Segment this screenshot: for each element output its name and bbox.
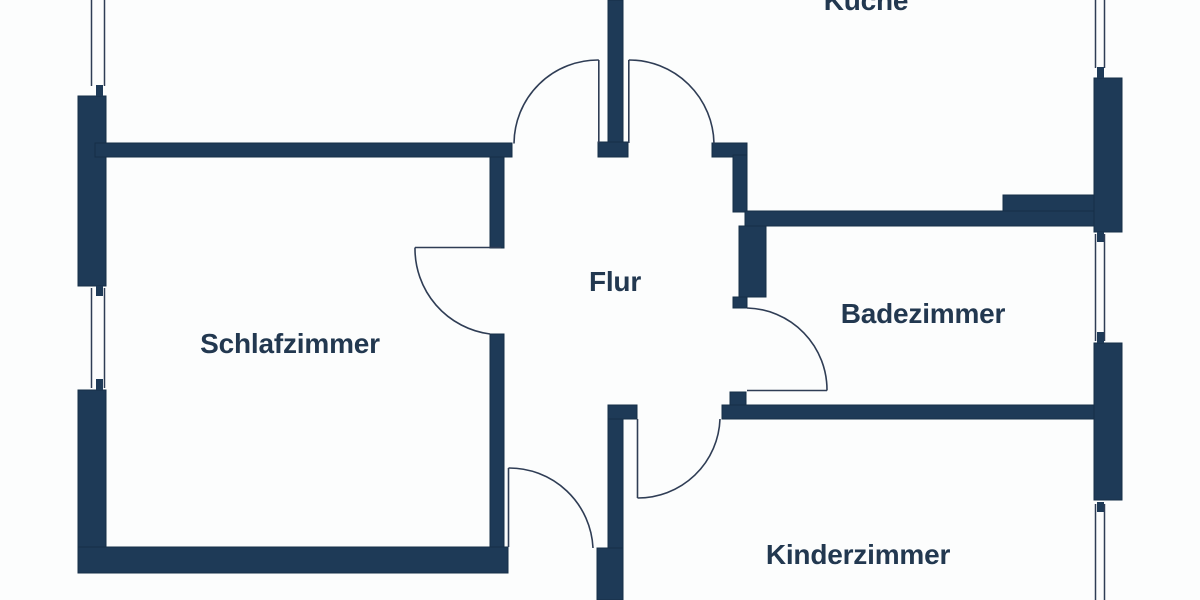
window-tick xyxy=(96,379,103,390)
room-label-kinderzimmer: Kinderzimmer xyxy=(766,541,950,569)
door-arc-icon xyxy=(629,60,714,144)
door-flur-bottom xyxy=(509,468,594,548)
door-badezimmer xyxy=(747,308,827,391)
window-right-top xyxy=(1096,0,1105,78)
door-kinderzimmer xyxy=(638,419,721,498)
window-tick xyxy=(96,286,103,296)
wall-bottom-schlafzimmer xyxy=(78,547,508,573)
floor-plan-drawing xyxy=(0,0,1200,600)
wall-right-upper xyxy=(1094,78,1122,232)
wall-badezimmer-doorjamb-top xyxy=(733,297,747,308)
door-flur-topleft xyxy=(514,60,599,144)
wall-left-upper xyxy=(78,96,106,286)
room-label-kueche: Küche xyxy=(824,0,909,15)
window-right-middle xyxy=(1096,232,1105,343)
door-arc-icon xyxy=(514,60,599,144)
window-tick xyxy=(1097,232,1104,242)
door-arc-icon xyxy=(415,248,490,335)
window-tick xyxy=(96,85,103,96)
door-kueche xyxy=(629,60,714,144)
wall-kinderzimmer-cap xyxy=(608,405,637,419)
wall-flur-right xyxy=(733,155,747,212)
wall-kueche-bottom xyxy=(745,211,1095,226)
wall-center-bottom xyxy=(597,548,623,600)
wall-top-center xyxy=(608,0,623,142)
wall-center-mid xyxy=(608,419,623,548)
wall-badezimmer-bottom xyxy=(722,405,1095,419)
floor-plan: Schlafzimmer Flur Küche Badezimmer Kinde… xyxy=(0,0,1200,600)
window-tick xyxy=(1097,332,1104,343)
window-tick xyxy=(1097,502,1104,512)
window-right-bottom xyxy=(1096,502,1105,600)
wall-schlafzimmer-right-lower xyxy=(490,334,504,547)
wall-badezimmer-left-pillar xyxy=(739,226,766,297)
window-left-top xyxy=(92,0,105,96)
wall-kueche-bottom-step xyxy=(1003,195,1095,211)
room-label-schlafzimmer: Schlafzimmer xyxy=(200,330,380,358)
wall-right-mid xyxy=(1094,343,1122,500)
window-left-middle xyxy=(92,286,105,390)
room-label-badezimmer: Badezimmer xyxy=(841,300,1006,328)
window-tick xyxy=(1097,67,1104,78)
door-arc-icon xyxy=(638,419,721,498)
wall-left-lower xyxy=(78,390,106,573)
wall-schlafzimmer-right-upper xyxy=(490,157,504,248)
door-schlafzimmer xyxy=(415,248,501,335)
wall-schlafzimmer-top xyxy=(95,143,512,157)
door-arc-icon xyxy=(509,468,594,548)
door-arc-icon xyxy=(747,308,827,391)
room-label-flur: Flur xyxy=(589,268,641,296)
wall-top-center-foot xyxy=(598,142,628,157)
